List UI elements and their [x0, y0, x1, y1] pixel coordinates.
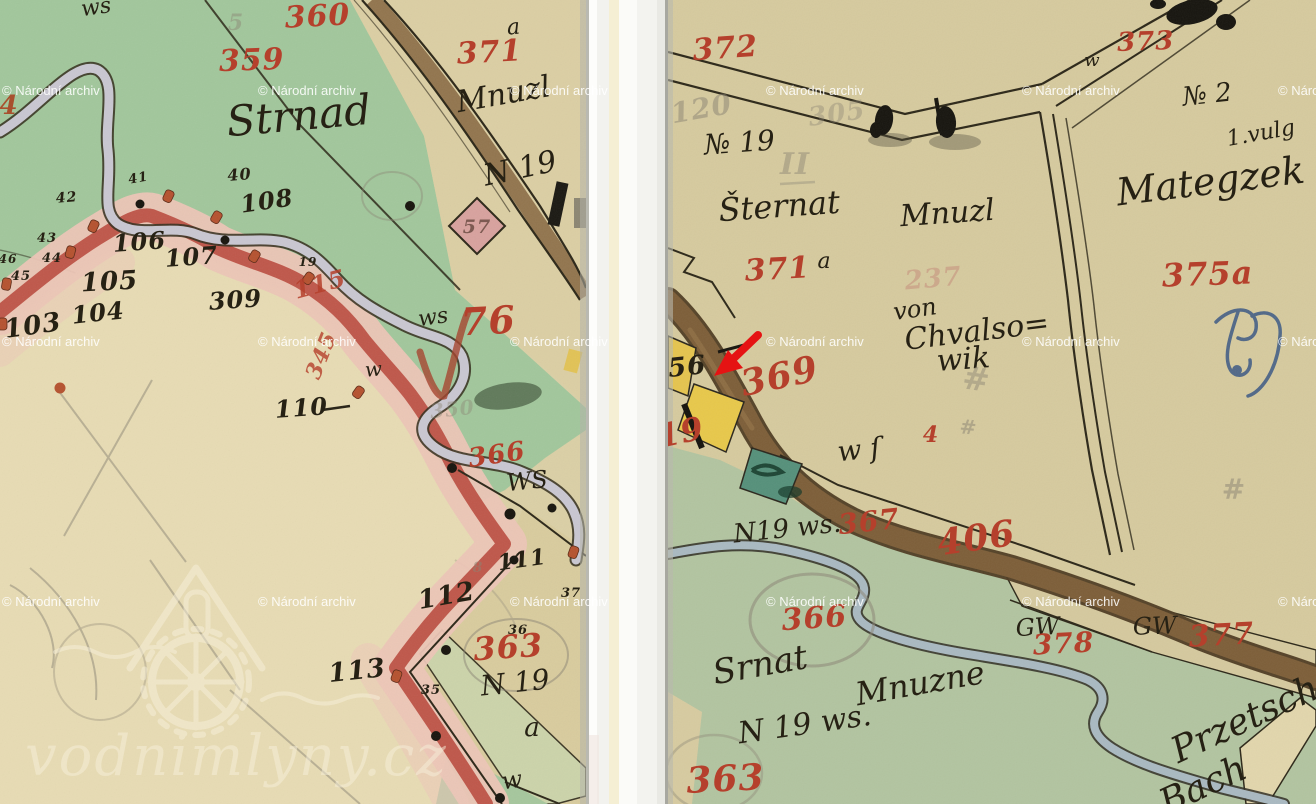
- archive-watermark-text: © Národní archiv: [1022, 83, 1120, 98]
- map-label: 367: [837, 502, 902, 541]
- archive-watermark-text: © Národní archiv: [510, 334, 608, 349]
- historic-cadastral-map: ws5360a371359Mnuzl4StrnadN 1941404210857…: [0, 0, 1316, 804]
- map-label: a: [817, 249, 830, 274]
- map-label: 363: [685, 756, 765, 802]
- map-label: 19: [299, 255, 318, 269]
- archive-watermark-text: © Národní archiv: [766, 334, 864, 349]
- archive-watermark-text: © Národní archiv: [2, 594, 100, 609]
- map-label: WS: [505, 465, 549, 497]
- map-label: 106: [112, 225, 167, 258]
- map-label: II: [779, 147, 810, 182]
- map-label: 309: [208, 283, 263, 316]
- archive-watermark-text: © Národní archiv: [510, 83, 608, 98]
- map-label: 110: [274, 391, 329, 424]
- map-label: 237: [902, 262, 963, 297]
- map-label: 113: [327, 653, 387, 689]
- map-label: a: [524, 713, 540, 743]
- map-label: 104: [70, 295, 126, 329]
- map-label: 377: [1188, 616, 1255, 654]
- archive-watermark-text: © Národní archiv: [1278, 83, 1316, 98]
- map-label: 5: [228, 10, 244, 36]
- archive-watermark-text: © Národní archiv: [1022, 594, 1120, 609]
- map-viewer[interactable]: ws5360a371359Mnuzl4StrnadN 1941404210857…: [0, 0, 1316, 804]
- map-label: ws: [416, 303, 449, 332]
- map-label: 375a: [1161, 253, 1254, 294]
- archive-watermark-text: © Národní archiv: [2, 83, 100, 98]
- map-label: 35: [421, 683, 441, 698]
- archive-watermark-text: © Národní archiv: [1278, 334, 1316, 349]
- archive-watermark-text: © Národní archiv: [2, 334, 100, 349]
- map-label: #: [960, 358, 993, 400]
- map-label: 45: [11, 269, 31, 284]
- map-label: № 19: [702, 124, 776, 162]
- archive-watermark-text: © Národní archiv: [1022, 334, 1120, 349]
- map-label: Mnuzl: [898, 193, 996, 235]
- map-label: w: [500, 765, 525, 796]
- map-label: 378: [1032, 625, 1095, 661]
- archive-watermark-text: © Národní archiv: [766, 83, 864, 98]
- map-label: 57: [463, 216, 491, 238]
- map-label: 105: [80, 266, 139, 299]
- map-label: 56: [667, 350, 708, 384]
- map-label: 4: [923, 422, 939, 448]
- map-label: 360: [284, 0, 351, 36]
- archive-watermark-text: © Národní archiv: [510, 594, 608, 609]
- map-label: 371: [744, 250, 811, 288]
- archive-watermark-text: © Národní archiv: [766, 594, 864, 609]
- archive-watermark-text: © Národní archiv: [258, 334, 356, 349]
- map-label: 107: [164, 240, 219, 273]
- map-label: 76: [460, 297, 517, 345]
- map-label: #: [959, 414, 979, 439]
- map-label: #: [1222, 473, 1246, 506]
- map-label: 359: [218, 42, 285, 79]
- map-label: 8: [473, 560, 484, 576]
- map-label: 372: [691, 29, 759, 68]
- archive-watermark-text: © Národní archiv: [258, 83, 356, 98]
- map-label: 350: [429, 395, 476, 424]
- map-label: 40: [227, 164, 253, 185]
- map-label: 44: [42, 251, 62, 266]
- map-label: 371: [456, 33, 523, 71]
- map-label: № 2: [1180, 78, 1233, 113]
- map-label: 43: [37, 231, 57, 246]
- map-label: w: [364, 356, 383, 381]
- map-label: w ſ: [836, 430, 887, 468]
- map-label: w: [1084, 50, 1100, 71]
- map-label: GW: [1132, 611, 1179, 641]
- site-watermark-text: vodnimlyny.cz: [25, 724, 448, 789]
- archive-watermark-text: © Národní archiv: [1278, 594, 1316, 609]
- map-label: 363: [472, 626, 544, 669]
- archive-watermark-text: © Národní archiv: [258, 594, 356, 609]
- map-label: 42: [55, 189, 78, 207]
- map-label: 46: [0, 252, 17, 266]
- scan-gap: [586, 0, 669, 804]
- map-label: 373: [1117, 26, 1175, 58]
